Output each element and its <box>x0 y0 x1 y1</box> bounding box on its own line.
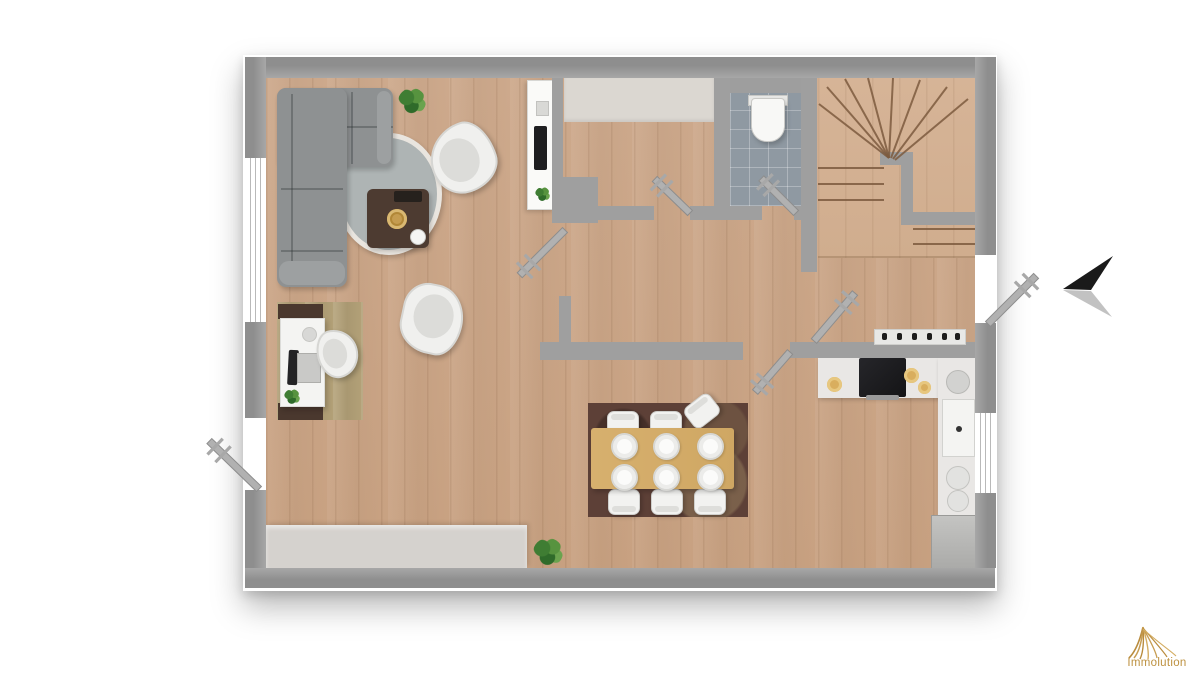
dining-table <box>591 428 734 489</box>
plant-icon <box>535 187 550 202</box>
bowl <box>827 377 842 392</box>
bowl <box>918 381 931 394</box>
tray <box>394 191 422 202</box>
exterior-wall-left <box>245 57 266 158</box>
plate <box>611 464 638 491</box>
north-arrow-icon <box>1063 256 1113 317</box>
tv-cabinet <box>527 80 555 210</box>
toilet <box>751 98 785 142</box>
burner <box>946 466 970 490</box>
desk-top-cap <box>278 304 323 319</box>
entry-mat <box>564 78 714 122</box>
dining-chair <box>651 489 683 515</box>
stair-newel-wall <box>901 212 975 225</box>
exterior-wall-top <box>245 57 995 78</box>
logo-icon <box>1129 627 1176 659</box>
oven <box>942 399 975 457</box>
wall <box>690 206 714 220</box>
plant-icon <box>533 538 563 567</box>
cup <box>410 229 426 245</box>
floor-plan-canvas: Immolution <box>0 0 1200 675</box>
wall <box>730 206 762 220</box>
window-right <box>975 413 996 493</box>
plate <box>697 464 724 491</box>
wc-top-ledge <box>730 78 801 94</box>
plate <box>697 433 724 460</box>
range-control-panel <box>874 329 966 345</box>
plant-icon <box>398 88 426 115</box>
exterior-wall-left <box>245 322 266 418</box>
wall <box>559 296 571 342</box>
kitchen-counter-right <box>938 358 975 520</box>
sink-basin <box>946 370 970 394</box>
fridge <box>931 515 977 570</box>
wall <box>540 342 743 360</box>
cooktop <box>859 358 906 397</box>
wall <box>714 78 730 220</box>
coffee-table <box>367 189 429 248</box>
desk <box>278 304 323 420</box>
oven-handle <box>866 395 899 400</box>
plate <box>611 433 638 460</box>
wall <box>598 206 654 220</box>
media-box <box>536 101 549 116</box>
wall <box>552 177 598 223</box>
burner <box>947 490 969 512</box>
exterior-wall-right <box>975 57 996 255</box>
sideboard <box>266 525 527 568</box>
desk-lamp <box>302 327 317 342</box>
plate <box>653 464 680 491</box>
window-left <box>245 158 266 322</box>
wall <box>552 78 563 178</box>
corner-sofa-side-section <box>277 88 347 287</box>
exterior-wall-right <box>975 493 996 568</box>
exterior-wall-right <box>975 323 996 413</box>
staircase-floor <box>818 78 975 258</box>
plant-icon <box>284 389 300 405</box>
exterior-wall-bottom <box>245 568 995 588</box>
plate <box>653 433 680 460</box>
tv <box>534 126 547 170</box>
dining-chair <box>694 489 726 515</box>
dining-chair <box>608 489 640 515</box>
gold-plate <box>387 209 407 229</box>
wall <box>801 78 817 272</box>
bowl <box>904 368 919 383</box>
oven-dial <box>956 426 962 432</box>
exterior-wall-left <box>245 490 266 568</box>
logo-text: Immolution <box>1124 657 1190 669</box>
